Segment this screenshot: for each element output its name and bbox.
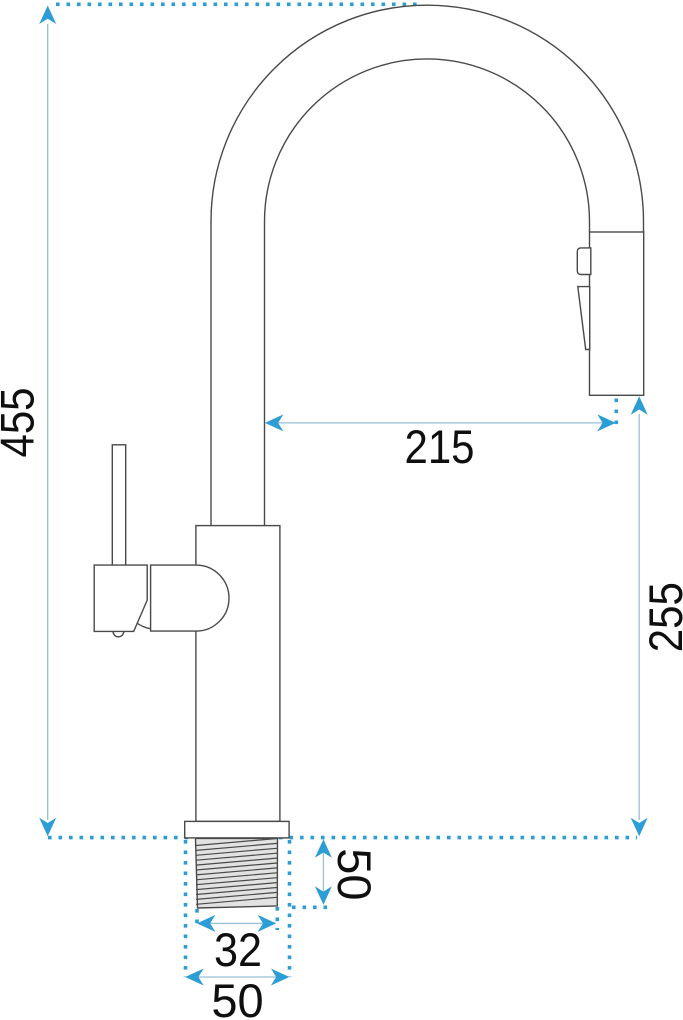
svg-text:255: 255 xyxy=(639,582,683,652)
svg-text:455: 455 xyxy=(0,388,44,458)
svg-text:32: 32 xyxy=(214,923,262,976)
svg-text:50: 50 xyxy=(211,974,263,1020)
svg-text:215: 215 xyxy=(405,420,475,473)
svg-text:50: 50 xyxy=(328,848,381,900)
